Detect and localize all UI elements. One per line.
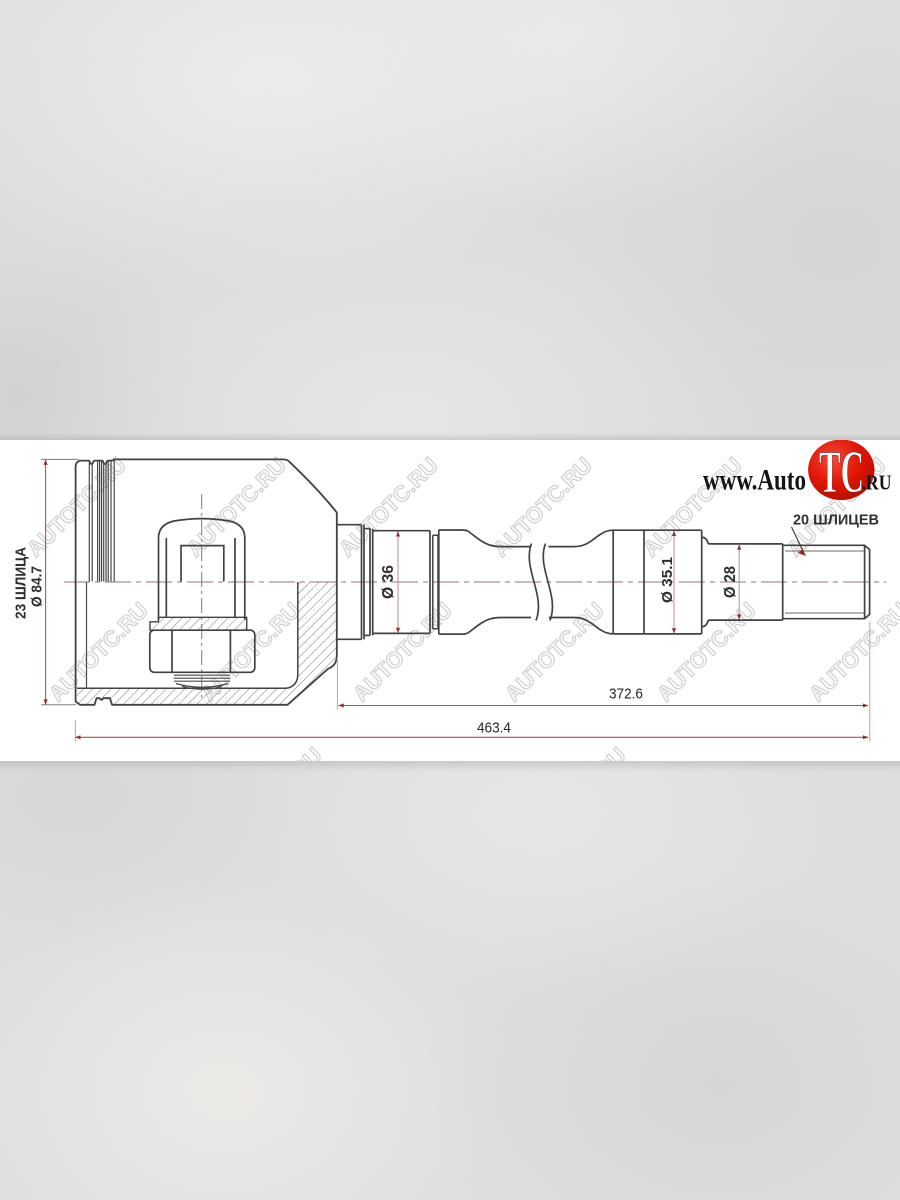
- svg-text:20 ШЛИЦЕВ: 20 ШЛИЦЕВ: [793, 513, 879, 529]
- svg-text:AUTOTC.RU: AUTOTC.RU: [334, 453, 443, 562]
- svg-text:Ø 35.1: Ø 35.1: [659, 557, 676, 603]
- svg-text:463.4: 463.4: [477, 720, 511, 737]
- svg-text:AUTOTC.RU: AUTOTC.RU: [826, 743, 900, 761]
- svg-text:www.Auto: www.Auto: [703, 464, 806, 497]
- svg-text:AUTOTC.RU: AUTOTC.RU: [522, 743, 631, 761]
- svg-text:AUTOTC.RU: AUTOTC.RU: [218, 743, 327, 761]
- svg-text:AUTOTC.RU: AUTOTC.RU: [652, 598, 761, 707]
- svg-text:TC: TC: [819, 440, 864, 505]
- svg-text:.RU: .RU: [862, 471, 892, 495]
- svg-text:Ø 36: Ø 36: [380, 565, 397, 599]
- svg-text:Ø 84.7: Ø 84.7: [29, 566, 46, 607]
- svg-text:372.6: 372.6: [609, 686, 643, 703]
- svg-text:Ø 28: Ø 28: [722, 566, 739, 598]
- svg-text:23 ШЛИЦА: 23 ШЛИЦА: [12, 547, 29, 619]
- svg-text:AUTOTC.RU: AUTOTC.RU: [500, 598, 609, 707]
- svg-text:AUTOTC.RU: AUTOTC.RU: [804, 598, 900, 707]
